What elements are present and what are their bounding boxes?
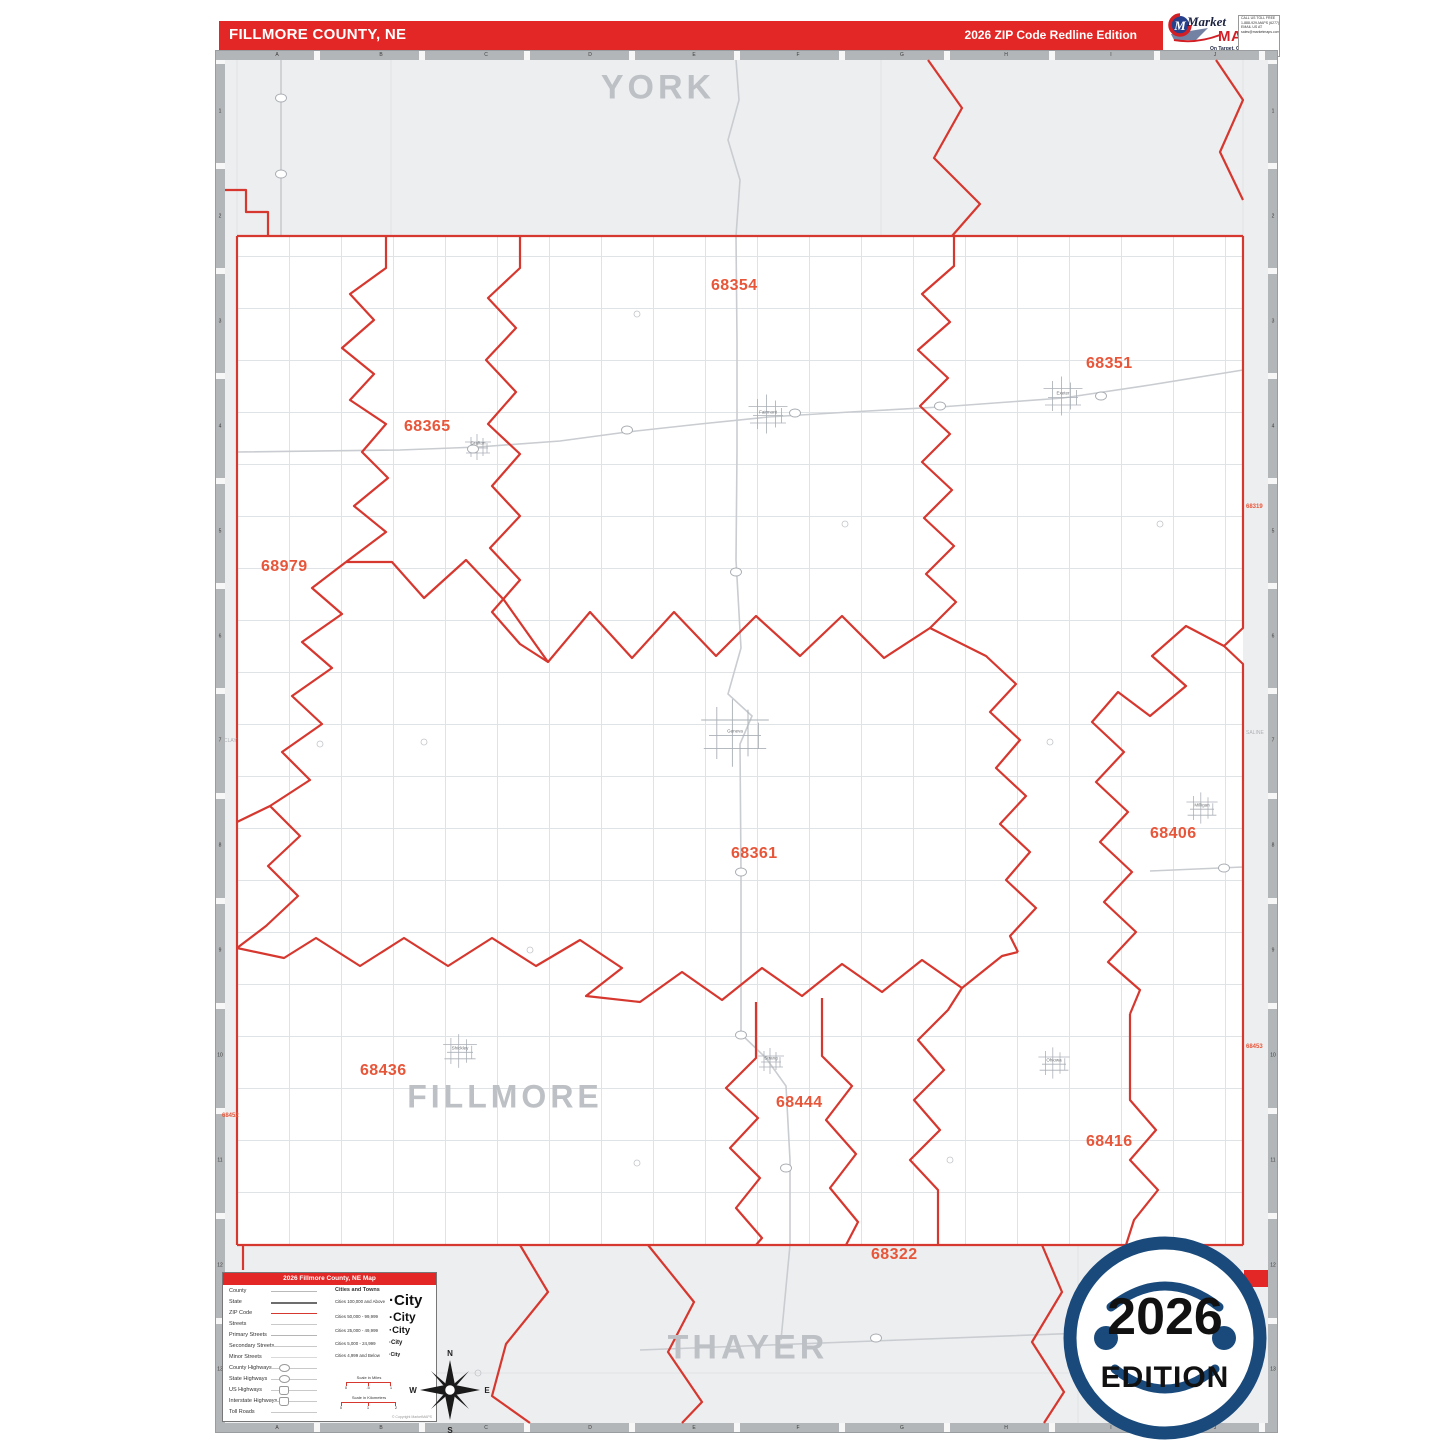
zip-label-edge: 68319 — [1246, 504, 1263, 510]
legend-line-sample — [271, 1291, 317, 1292]
map-linework — [0, 0, 1445, 1445]
town-label: Fairmont — [759, 410, 777, 415]
map-poster: FILLMORE COUNTY, NE 2026 ZIP Code Redlin… — [0, 0, 1445, 1445]
zip-label: 68322 — [871, 1246, 918, 1264]
town-label: Shickley — [452, 1046, 469, 1051]
legend-item: State Highways — [229, 1376, 267, 1382]
city-sample: ·City — [389, 1340, 402, 1346]
legend-line-sample — [271, 1313, 317, 1314]
scale-miles-bar — [346, 1382, 391, 1383]
city-sample: ·City — [389, 1310, 416, 1324]
town-label: Milligan — [1194, 803, 1209, 808]
legend-item: Streets — [229, 1321, 246, 1327]
town-label: Exeter — [1056, 391, 1069, 396]
city-sample: ·City — [389, 1352, 400, 1358]
scale-km-label: Scale in Kilometers — [352, 1395, 386, 1400]
town-label: Strang — [764, 1056, 777, 1061]
legend-item: Secondary Streets — [229, 1343, 274, 1349]
zip-label: 68416 — [1086, 1133, 1133, 1151]
legend-line-sample — [271, 1324, 317, 1325]
zip-label-edge: 68452 — [222, 1113, 239, 1119]
edition-badge: 2026 EDITION — [1063, 1235, 1267, 1441]
zip-label: 68351 — [1086, 355, 1133, 373]
county-name-label: FILLMORE — [407, 1079, 603, 1116]
legend-line-sample — [271, 1379, 317, 1380]
city-class-label: Cities 4,999 and Below — [335, 1353, 380, 1358]
zip-label: 68354 — [711, 277, 758, 295]
svg-text:S: S — [447, 1426, 453, 1435]
legend-title: 2026 Fillmore County, NE Map — [223, 1273, 436, 1285]
town-label: Ohiowa — [1046, 1058, 1061, 1063]
city-class-label: Cities 5,000 - 24,999 — [335, 1341, 376, 1346]
legend-item: US Highways — [229, 1387, 262, 1393]
zip-label: 68436 — [360, 1062, 407, 1080]
neighbor-county-south: THAYER — [668, 1329, 829, 1368]
city-class-label: Cities 25,000 - 49,999 — [335, 1328, 378, 1333]
badge-word: EDITION — [1101, 1361, 1230, 1394]
svg-text:N: N — [447, 1349, 453, 1358]
legend-item: State — [229, 1299, 242, 1305]
legend-line-sample — [271, 1357, 317, 1358]
town-label: Grafton — [470, 441, 485, 446]
city-sample: ·City — [389, 1292, 422, 1309]
cities-header: Cities and Towns — [335, 1287, 380, 1293]
svg-text:E: E — [484, 1386, 490, 1395]
town-label: Geneva — [727, 729, 743, 734]
scale-miles-label: Scale in Miles — [357, 1375, 382, 1380]
zip-label: 68361 — [731, 845, 778, 863]
scale-tick: 2 — [395, 1405, 397, 1410]
scale-tick: 1 — [390, 1385, 392, 1390]
badge-year: 2026 — [1107, 1288, 1223, 1346]
legend-line-sample — [271, 1368, 317, 1369]
legend-item: Toll Roads — [229, 1409, 255, 1415]
interstate-shield-icon — [279, 1397, 289, 1406]
legend-line-sample — [271, 1302, 317, 1304]
scale-tick: 0 — [340, 1405, 342, 1410]
legend-item: County Highways — [229, 1365, 272, 1371]
neighbor-county-east: SALINE — [1246, 730, 1264, 736]
compass-rose-icon: N E S W — [405, 1345, 495, 1435]
scale-tick: 1 — [367, 1405, 369, 1410]
legend-item: Primary Streets — [229, 1332, 267, 1338]
state-highway-shield-icon — [279, 1375, 290, 1383]
legend-line-sample — [271, 1412, 317, 1413]
neighbor-county-west: CLAY — [224, 738, 237, 744]
legend-line-sample — [271, 1335, 317, 1336]
legend-line-sample — [271, 1401, 317, 1402]
scale-km-bar — [341, 1402, 396, 1403]
us-highway-shield-icon — [279, 1386, 289, 1395]
legend-item: ZIP Code — [229, 1310, 252, 1316]
city-class-label: Cities 50,000 - 99,999 — [335, 1314, 378, 1319]
scale-tick: .5 — [366, 1385, 369, 1390]
zip-boundaries — [225, 60, 1243, 1423]
zip-label: 68406 — [1150, 825, 1197, 843]
scale-tick: 0 — [345, 1385, 347, 1390]
legend-line-sample — [271, 1346, 317, 1347]
county-highway-shield-icon — [279, 1364, 290, 1372]
zip-label: 68979 — [261, 558, 308, 576]
neighbor-county-north: YORK — [601, 69, 715, 108]
city-sample: ·City — [389, 1325, 410, 1336]
zip-label: 68365 — [404, 418, 451, 436]
zip-label: 68444 — [776, 1094, 823, 1112]
legend-item: Minor Streets — [229, 1354, 262, 1360]
zip-label-edge: 68453 — [1246, 1044, 1263, 1050]
legend-line-sample — [271, 1390, 317, 1391]
legend-item: County — [229, 1288, 246, 1294]
city-class-label: Cities 100,000 and Above — [335, 1299, 385, 1304]
svg-text:W: W — [409, 1386, 417, 1395]
section-lines — [237, 60, 1243, 1423]
